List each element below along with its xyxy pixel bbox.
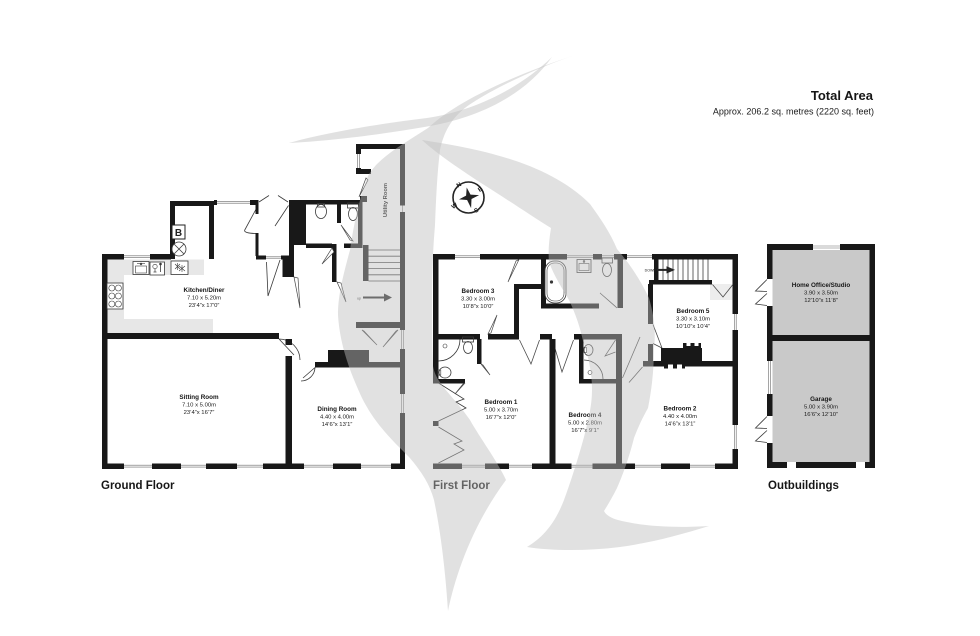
svg-text:Outbuildings: Outbuildings (768, 480, 839, 492)
svg-text:16’7”x 12’0”: 16’7”x 12’0” (486, 415, 517, 421)
svg-text:23’4”x 17’0”: 23’4”x 17’0” (189, 303, 220, 309)
svg-text:Approx. 206.2 sq. metres (2220: Approx. 206.2 sq. metres (2220 sq. feet) (713, 107, 874, 117)
svg-text:Garage: Garage (810, 396, 832, 403)
svg-text:5.00 x 3.70m: 5.00 x 3.70m (484, 408, 518, 414)
svg-text:Kitchen/Diner: Kitchen/Diner (184, 287, 225, 294)
svg-text:Bedroom 1: Bedroom 1 (485, 399, 518, 406)
svg-text:4.40 x 4.00m: 4.40 x 4.00m (663, 414, 697, 420)
svg-text:5.00 x 3.90m: 5.00 x 3.90m (804, 405, 838, 411)
svg-text:14’6”x 13’1”: 14’6”x 13’1” (665, 422, 696, 428)
svg-text:14’6”x 13’1”: 14’6”x 13’1” (322, 422, 353, 428)
svg-text:10’10”x 10’4”: 10’10”x 10’4” (676, 324, 710, 330)
svg-text:7.10 x 5.00m: 7.10 x 5.00m (182, 403, 216, 409)
svg-text:Bedroom 5: Bedroom 5 (677, 308, 710, 315)
svg-text:10’8”x 10’0”: 10’8”x 10’0” (463, 304, 494, 310)
svg-text:Total Area: Total Area (811, 88, 874, 103)
svg-text:Home Office/Studio: Home Office/Studio (792, 282, 851, 289)
svg-text:3.90 x 3.50m: 3.90 x 3.50m (804, 291, 838, 297)
svg-text:Dining Room: Dining Room (317, 406, 357, 413)
svg-text:Ground Floor: Ground Floor (101, 480, 175, 492)
svg-text:B: B (175, 228, 182, 239)
svg-text:16’6”x 12’10”: 16’6”x 12’10” (804, 412, 838, 418)
svg-text:Bedroom 2: Bedroom 2 (664, 406, 697, 413)
svg-text:12’10”x 11’8”: 12’10”x 11’8” (804, 298, 838, 304)
svg-text:Bedroom 3: Bedroom 3 (462, 288, 495, 295)
svg-text:Sitting Room: Sitting Room (179, 394, 219, 401)
svg-text:DOWN: DOWN (645, 269, 657, 273)
svg-text:4.40 x 4.00m: 4.40 x 4.00m (320, 415, 354, 421)
svg-text:23’4”x 16’7”: 23’4”x 16’7” (184, 410, 215, 416)
svg-text:7.10 x 5.20m: 7.10 x 5.20m (187, 296, 221, 302)
svg-text:3.30 x 3.10m: 3.30 x 3.10m (676, 317, 710, 323)
svg-text:3.30 x 3.00m: 3.30 x 3.00m (461, 297, 495, 303)
